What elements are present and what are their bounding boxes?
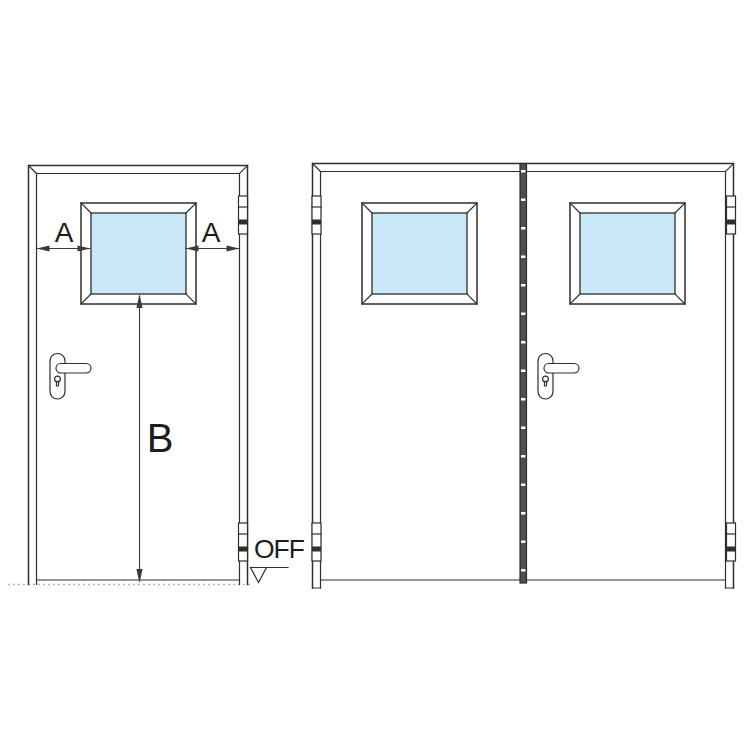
drawing-svg: A A B OFF bbox=[0, 0, 750, 750]
dim-label-a-right: A bbox=[202, 217, 221, 248]
arrowhead-down-icon bbox=[136, 569, 142, 583]
dim-label-a-left: A bbox=[55, 217, 74, 248]
arrowhead-right-icon bbox=[227, 245, 240, 251]
hinge-left-bottom-icon bbox=[312, 523, 321, 561]
frame-mitre-lines bbox=[29, 166, 248, 174]
arrowhead-up-icon bbox=[136, 294, 142, 308]
hinge-right-bottom-icon bbox=[727, 523, 736, 561]
datum-triangle-icon bbox=[251, 568, 267, 583]
hinge-bottom-icon bbox=[239, 523, 248, 561]
double-leaf-door bbox=[312, 164, 736, 589]
glazing-window bbox=[81, 203, 196, 304]
floor-level-label: OFF bbox=[254, 534, 305, 564]
door-technical-drawing: A A B OFF bbox=[0, 0, 750, 750]
glazing-window-left-leaf bbox=[362, 203, 477, 304]
lever-handle bbox=[50, 354, 91, 400]
dimension-a-right: A bbox=[186, 217, 240, 252]
hinge-right-top-icon bbox=[727, 196, 736, 234]
arrowhead-right-icon bbox=[78, 245, 91, 251]
single-leaf-door: A A B bbox=[8, 166, 250, 585]
floor-level-marker: OFF bbox=[251, 534, 305, 583]
arrowhead-left-icon bbox=[37, 245, 50, 251]
hinge-top-icon bbox=[239, 196, 248, 234]
lever-handle bbox=[538, 354, 579, 400]
dimension-a-left: A bbox=[37, 217, 91, 252]
dimension-b: B bbox=[136, 294, 173, 583]
meeting-stile bbox=[520, 164, 527, 584]
dim-label-b: B bbox=[147, 416, 174, 460]
glazing-window-right-leaf bbox=[570, 203, 685, 304]
hinge-left-top-icon bbox=[312, 196, 321, 234]
arrowhead-left-icon bbox=[186, 245, 199, 251]
